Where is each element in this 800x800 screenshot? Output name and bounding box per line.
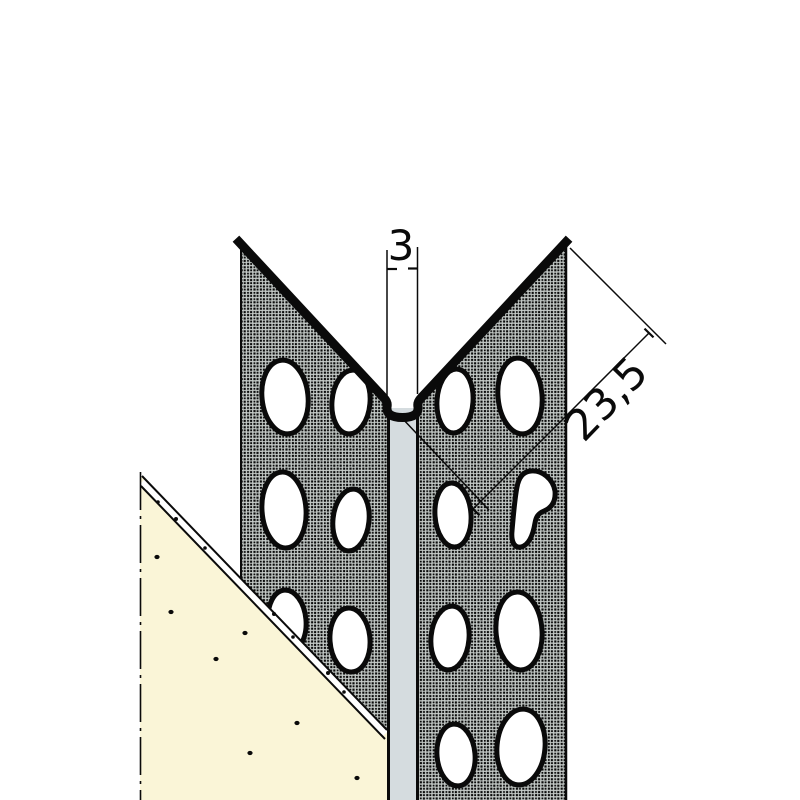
corner-profile-technical-drawing: 3 23,5 — [0, 0, 800, 800]
dimension-label-flange-width: 23,5 — [556, 347, 658, 451]
extension-line — [570, 248, 666, 344]
dimension-label-gap-width: 3 — [388, 221, 415, 270]
perforation-hole — [433, 482, 473, 548]
drawing-canvas: 3 23,5 — [0, 0, 800, 800]
corner-gap-strip — [389, 405, 418, 800]
perforation-hole — [328, 607, 372, 674]
right-flange-perforated — [419, 244, 567, 800]
gap-strip-fill — [390, 408, 416, 800]
dimension-corner-gap: 3 — [387, 221, 418, 399]
